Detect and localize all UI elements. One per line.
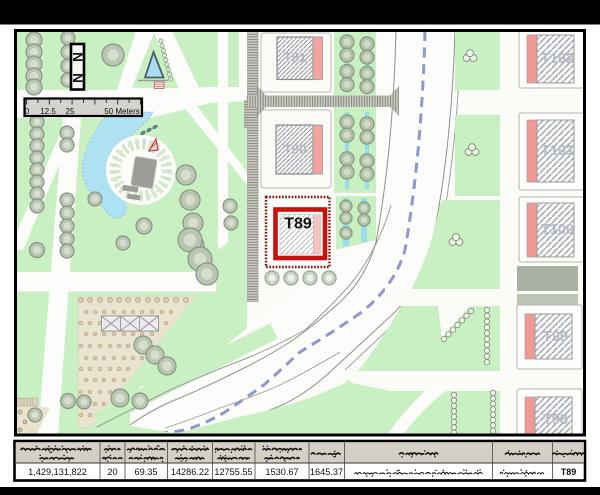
svg-text:25: 25	[66, 107, 75, 116]
svg-text:12.5: 12.5	[40, 107, 56, 116]
svg-text:69.35: 69.35	[135, 467, 158, 477]
svg-text:0: 0	[25, 107, 30, 116]
svg-text:T89: T89	[561, 467, 577, 477]
svg-text:T99: T99	[543, 329, 568, 345]
svg-text:T89: T89	[284, 216, 312, 233]
svg-text:N: N	[70, 52, 85, 62]
svg-text:14286.22: 14286.22	[171, 467, 209, 477]
svg-text:T90: T90	[283, 142, 306, 157]
svg-text:N: N	[70, 73, 85, 83]
svg-text:T91: T91	[283, 50, 307, 65]
svg-text:1530.67: 1530.67	[265, 467, 298, 477]
svg-text:T100: T100	[541, 222, 574, 238]
svg-text:T101: T101	[541, 143, 574, 159]
svg-text:1645.37: 1645.37	[310, 467, 343, 477]
svg-text:T98: T98	[543, 412, 568, 428]
svg-text:20: 20	[107, 467, 117, 477]
svg-text:T102: T102	[541, 51, 574, 67]
svg-text:12755.55: 12755.55	[214, 467, 252, 477]
svg-text:50 Meters: 50 Meters	[104, 107, 140, 116]
svg-text:1,429,131,822: 1,429,131,822	[28, 467, 87, 477]
